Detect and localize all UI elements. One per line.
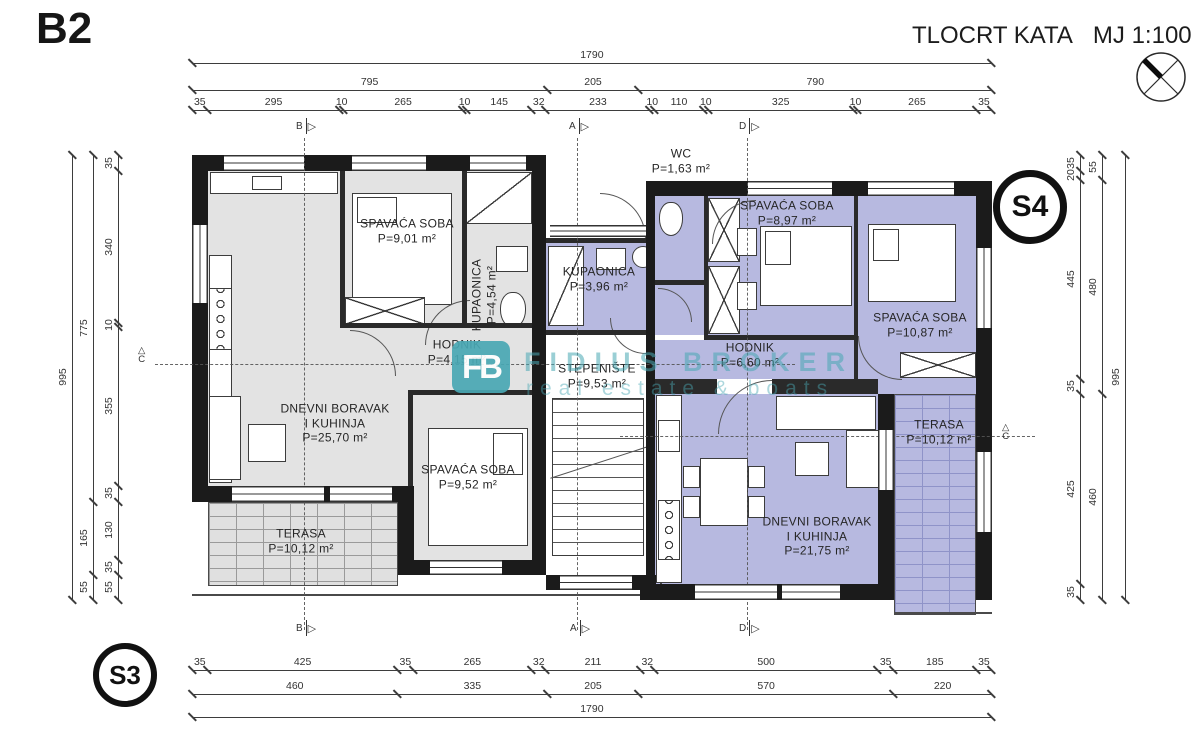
dimension-value: 265 <box>464 656 482 668</box>
room-name: I KUHINJA <box>762 529 871 544</box>
dimension-value: 35 <box>103 488 115 500</box>
room-name: WC <box>652 147 710 162</box>
room-area: P=9,01 m² <box>360 231 454 246</box>
section-bar <box>749 118 750 134</box>
dimension-value: 425 <box>294 656 312 668</box>
dimension-value: 10 <box>336 96 348 108</box>
room-label-spavaca2: SPAVAĆA SOBAP=9,52 m² <box>421 463 515 492</box>
window <box>878 430 894 490</box>
window <box>470 155 526 171</box>
partition-wall <box>546 238 650 243</box>
partition-wall <box>413 390 532 395</box>
section-marker-b: B▷ <box>296 118 316 134</box>
dimension-value: 145 <box>490 96 508 108</box>
dimension-line <box>1102 155 1103 600</box>
section-letter: B <box>296 623 303 634</box>
dimension-value: 110 <box>671 96 688 108</box>
section-letter: D <box>739 121 746 132</box>
section-bar <box>580 620 581 636</box>
chair <box>683 496 700 518</box>
room-area: P=9,52 m² <box>421 477 515 492</box>
stan-badge-s4: S4 <box>993 170 1067 244</box>
window <box>782 584 840 600</box>
wall-segment <box>976 181 992 600</box>
room-area: P=4,15 m² <box>428 352 486 367</box>
dimension-line <box>192 670 992 671</box>
section-line <box>620 436 1035 437</box>
dimension-value: 35 <box>194 96 206 108</box>
room-area: P=10,12 m² <box>906 432 971 447</box>
wall-segment <box>192 155 208 502</box>
window <box>430 560 502 575</box>
section-bar <box>579 118 580 134</box>
sofa <box>776 396 876 430</box>
dimension-value: 35 <box>103 157 115 169</box>
room-name: HODNIK <box>721 341 779 356</box>
section-triangle-icon: ▷ <box>308 120 316 133</box>
dimension-value: 295 <box>265 96 283 108</box>
dimension-value: 35 <box>1065 157 1077 169</box>
dimension-value: 35 <box>400 656 412 668</box>
room-name: DNEVNI BORAVAK <box>762 514 871 529</box>
section-letter: B <box>296 121 303 132</box>
wall-segment <box>532 155 546 575</box>
dimension-value: 205 <box>584 76 602 88</box>
dimension-value: 995 <box>57 369 69 387</box>
dimension-line <box>93 155 94 600</box>
dimension-value: 35 <box>978 96 990 108</box>
window <box>192 225 208 303</box>
section-bar <box>749 620 750 636</box>
partition-wall <box>772 379 878 394</box>
door-arc <box>718 380 772 434</box>
wall-segment <box>646 181 655 600</box>
room-name: DNEVNI BORAVAK <box>280 401 389 416</box>
room-name: SPAVAĆA SOBA <box>740 199 834 214</box>
dimension-value: 460 <box>1087 488 1099 506</box>
dimension-value: 211 <box>585 656 602 668</box>
dimension-value: 1790 <box>580 49 603 61</box>
dimension-line <box>192 717 992 718</box>
floor-plan-canvas: B2 TLOCRT KATAMJ 1:100 S4 S3 FB FIDIUS B… <box>0 0 1200 736</box>
room-label-terasa2: TERASAP=10,12 m² <box>906 418 971 447</box>
room-label-dnevni2: DNEVNI BORAVAKI KUHINJAP=21,75 m² <box>762 514 871 558</box>
section-marker-a: A▷ <box>569 118 589 134</box>
section-line <box>304 138 305 630</box>
partition-wall <box>854 196 858 394</box>
section-marker-c: △C <box>138 346 145 364</box>
window <box>976 452 992 532</box>
room-label-stepeniste: STEPENIŠTEP=9,53 m² <box>558 362 636 391</box>
room-name: KUPAONICA <box>470 259 485 332</box>
partition-wall <box>462 171 467 328</box>
dimension-value: 325 <box>772 96 790 108</box>
room-name: KUPAONICA <box>563 265 636 280</box>
staircase <box>552 398 644 556</box>
room-area: P=1,63 m² <box>652 161 710 176</box>
stove <box>209 288 232 350</box>
room-area: P=10,12 m² <box>268 541 333 556</box>
dimension-value: 1790 <box>580 703 603 715</box>
dimension-value: 35 <box>1065 380 1077 392</box>
room-area: P=9,53 m² <box>558 376 636 391</box>
dimension-value: 55 <box>103 581 115 593</box>
room-label-hodnik2: HODNIKP=6,60 m² <box>721 341 779 370</box>
north-compass-icon <box>1134 50 1188 104</box>
dimension-line <box>192 63 992 64</box>
window <box>352 155 426 171</box>
window <box>232 486 324 502</box>
sofa <box>209 396 241 480</box>
partition-wall <box>655 379 717 394</box>
wardrobe <box>708 266 740 334</box>
dimension-value: 220 <box>934 680 952 692</box>
dimension-value: 570 <box>757 680 775 692</box>
section-letter: A <box>569 121 576 132</box>
room-name: SPAVAĆA SOBA <box>873 311 967 326</box>
window <box>224 155 304 171</box>
room-label-terasa1: TERASAP=10,12 m² <box>268 527 333 556</box>
dimension-value: 265 <box>394 96 412 108</box>
partition-wall <box>655 280 704 285</box>
dimension-value: 265 <box>908 96 926 108</box>
plan-code: B2 <box>36 4 92 54</box>
room-label-spavaca4: SPAVAĆA SOBAP=10,87 m² <box>873 311 967 340</box>
window <box>976 248 992 328</box>
partition-wall <box>408 390 413 486</box>
section-bar <box>306 620 307 636</box>
partition-wall <box>704 196 708 340</box>
dimension-value: 995 <box>1110 369 1122 387</box>
dimension-value: 500 <box>757 656 775 668</box>
dimension-value: 355 <box>103 398 115 416</box>
section-marker-d: D▷ <box>739 118 760 134</box>
dimension-value: 35 <box>978 656 990 668</box>
section-triangle-icon: ▷ <box>581 120 589 133</box>
dimension-value: 480 <box>1087 278 1099 296</box>
dimension-line <box>1125 155 1126 600</box>
dimension-value: 460 <box>286 680 304 692</box>
pillow <box>873 229 899 261</box>
dimension-line <box>192 90 992 91</box>
section-triangle-icon: ▷ <box>751 120 759 133</box>
window <box>695 584 777 600</box>
section-letter: C <box>1002 432 1009 441</box>
section-marker-c: △C <box>1002 423 1009 441</box>
outline-line <box>192 594 662 596</box>
room-label-kupaonica2: KUPAONICAP=3,96 m² <box>563 265 636 294</box>
section-marker-a: A▷ <box>570 620 590 636</box>
wall-segment <box>878 394 894 600</box>
toilet <box>659 202 683 236</box>
dimension-value: 795 <box>361 76 379 88</box>
dimension-value: 165 <box>78 529 90 547</box>
dimension-value: 10 <box>459 96 471 108</box>
room-name: SPAVAĆA SOBA <box>421 463 515 478</box>
shower <box>466 172 532 224</box>
wardrobe <box>345 297 425 325</box>
dimension-value: 340 <box>103 238 115 256</box>
section-triangle-icon: ▷ <box>751 622 759 635</box>
section-bar <box>306 118 307 134</box>
section-marker-d: D▷ <box>739 620 760 636</box>
scale-label: MJ 1:100 <box>1093 22 1192 49</box>
section-triangle-icon: ▷ <box>308 622 316 635</box>
dimension-value: 790 <box>807 76 825 88</box>
section-letter: D <box>739 623 746 634</box>
dimension-value: 35 <box>880 656 892 668</box>
bathroom-sink <box>496 246 528 272</box>
section-marker-b: B▷ <box>296 620 316 636</box>
room-name: I KUHINJA <box>280 416 389 431</box>
room-area: P=8,97 m² <box>740 213 834 228</box>
sofa <box>846 430 880 488</box>
dimension-value: 233 <box>589 96 607 108</box>
dimension-value: 55 <box>78 581 90 593</box>
dimension-value: 20 <box>1065 169 1077 181</box>
room-label-kupaonica1: KUPAONICAP=4,54 m² <box>470 259 499 332</box>
outline-line <box>894 612 992 614</box>
dining-table <box>700 458 748 526</box>
door-arc <box>610 318 646 354</box>
room-name: TERASA <box>906 418 971 433</box>
chair <box>748 466 765 488</box>
dimension-value: 32 <box>533 96 545 108</box>
room-area: P=3,96 m² <box>563 279 636 294</box>
section-triangle-icon: ▷ <box>582 622 590 635</box>
kitchen-sink <box>252 176 282 190</box>
partition-wall <box>546 330 650 335</box>
pillow <box>765 231 791 265</box>
title-text: TLOCRT KATA <box>912 22 1073 49</box>
room-name: SPAVAĆA SOBA <box>360 217 454 232</box>
window <box>330 486 392 502</box>
dimension-value: 10 <box>700 96 712 108</box>
window <box>550 225 646 237</box>
dimension-line <box>72 155 73 600</box>
dimension-value: 425 <box>1065 480 1077 498</box>
room-name: HODNIK <box>428 338 486 353</box>
partition-wall <box>708 335 854 340</box>
dimension-value: 32 <box>641 656 653 668</box>
dimension-value: 205 <box>584 680 602 692</box>
dimension-value: 32 <box>533 656 545 668</box>
dimension-value: 10 <box>103 319 115 331</box>
chair <box>683 466 700 488</box>
dimension-line <box>192 694 992 695</box>
partition-wall <box>340 323 546 328</box>
window <box>560 575 632 590</box>
partition-wall <box>340 171 345 328</box>
room-label-wc: WCP=1,63 m² <box>652 147 710 176</box>
dimension-value: 55 <box>1087 161 1099 173</box>
dimension-value: 10 <box>646 96 658 108</box>
dimension-value: 130 <box>103 522 115 540</box>
room-area: P=21,75 m² <box>762 543 871 558</box>
room-label-spavaca1: SPAVAĆA SOBAP=9,01 m² <box>360 217 454 246</box>
dimension-line <box>192 110 992 111</box>
room-area: P=25,70 m² <box>280 430 389 445</box>
section-letter: C <box>138 355 145 364</box>
drawing-title: TLOCRT KATAMJ 1:100 <box>912 22 1192 50</box>
stan-badge-s3: S3 <box>93 643 157 707</box>
room-label-dnevni1: DNEVNI BORAVAKI KUHINJAP=25,70 m² <box>280 401 389 445</box>
room-area: P=10,87 m² <box>873 325 967 340</box>
window <box>748 181 832 196</box>
dimension-value: 185 <box>926 656 944 668</box>
dimension-value: 35 <box>1065 586 1077 598</box>
coffee-table <box>795 442 829 476</box>
section-letter: A <box>570 623 577 634</box>
dimension-value: 775 <box>78 319 90 337</box>
dimension-value: 445 <box>1065 270 1077 288</box>
room-name: STEPENIŠTE <box>558 362 636 377</box>
dimension-value: 35 <box>194 656 206 668</box>
wardrobe <box>900 352 976 378</box>
window <box>868 181 954 196</box>
dimension-value: 35 <box>103 561 115 573</box>
room-name: TERASA <box>268 527 333 542</box>
dimension-value: 335 <box>464 680 482 692</box>
room-area: P=4,54 m² <box>484 259 499 332</box>
room-label-spavaca3: SPAVAĆA SOBAP=8,97 m² <box>740 199 834 228</box>
room-label-hodnik1: HODNIKP=4,15 m² <box>428 338 486 367</box>
room-area: P=6,60 m² <box>721 355 779 370</box>
dimension-value: 10 <box>850 96 862 108</box>
dimension-line <box>118 155 119 600</box>
stove <box>658 500 680 560</box>
